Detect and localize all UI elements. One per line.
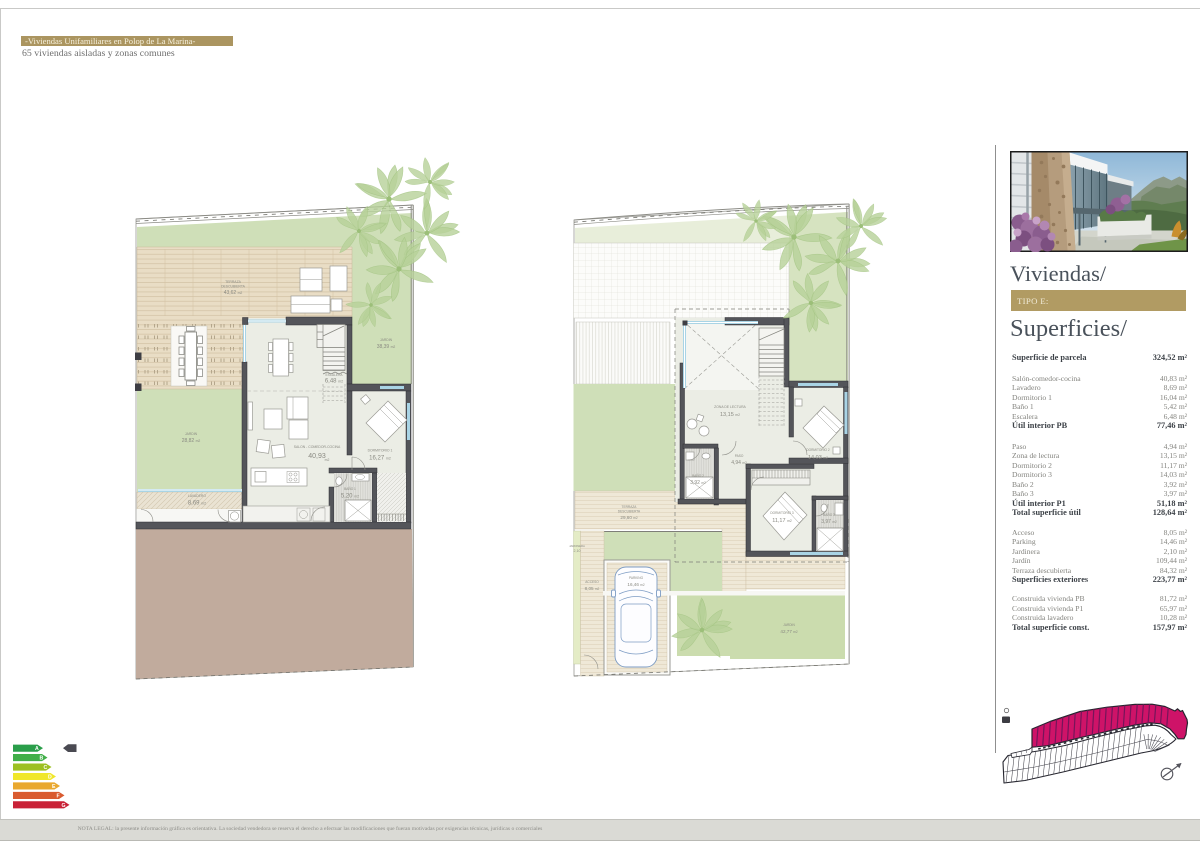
svg-text:JARDIN: JARDIN [185, 432, 198, 436]
svg-text:42,77 m2: 42,77 m2 [780, 629, 797, 634]
svg-text:PARKING: PARKING [629, 576, 644, 580]
svg-text:PASO: PASO [735, 454, 744, 458]
svg-text:40,93: 40,93 [308, 453, 326, 460]
svg-text:LAVADERO: LAVADERO [188, 494, 206, 498]
svg-text:ACCESO: ACCESO [585, 580, 599, 584]
svg-text:BAÑO 1: BAÑO 1 [344, 486, 356, 491]
svg-text:8,05 m2: 8,05 m2 [585, 586, 600, 591]
svg-text:ZONA DE LECTURA: ZONA DE LECTURA [714, 405, 746, 409]
svg-text:29,60 m2: 29,60 m2 [620, 515, 637, 520]
svg-text:SALON - COMEDOR-COCINA: SALON - COMEDOR-COCINA [294, 445, 341, 449]
svg-text:JARDIN: JARDIN [783, 623, 795, 627]
svg-text:DESCUBIERTA: DESCUBIERTA [618, 510, 641, 514]
svg-text:16,46 m2: 16,46 m2 [627, 582, 644, 587]
svg-text:TERRAZA: TERRAZA [225, 280, 242, 284]
svg-text:JARDIN: JARDIN [380, 338, 393, 342]
svg-text:DORMITORIO 2: DORMITORIO 2 [806, 448, 830, 452]
svg-text:2,10: 2,10 [574, 549, 581, 553]
svg-text:BAÑO 2: BAÑO 2 [692, 473, 704, 478]
svg-text:m2: m2 [325, 458, 330, 462]
svg-text:ESCALERA: ESCALERA [325, 373, 343, 377]
svg-text:BAÑO 3: BAÑO 3 [823, 512, 835, 517]
svg-text:DESCUBIERTA: DESCUBIERTA [221, 285, 246, 289]
svg-text:DORMITORIO 1: DORMITORIO 1 [368, 449, 393, 453]
svg-text:TERRAZA: TERRAZA [622, 505, 638, 509]
svg-text:DORMITORIO 3: DORMITORIO 3 [770, 511, 794, 515]
svg-text:JARDINERA: JARDINERA [569, 544, 585, 548]
